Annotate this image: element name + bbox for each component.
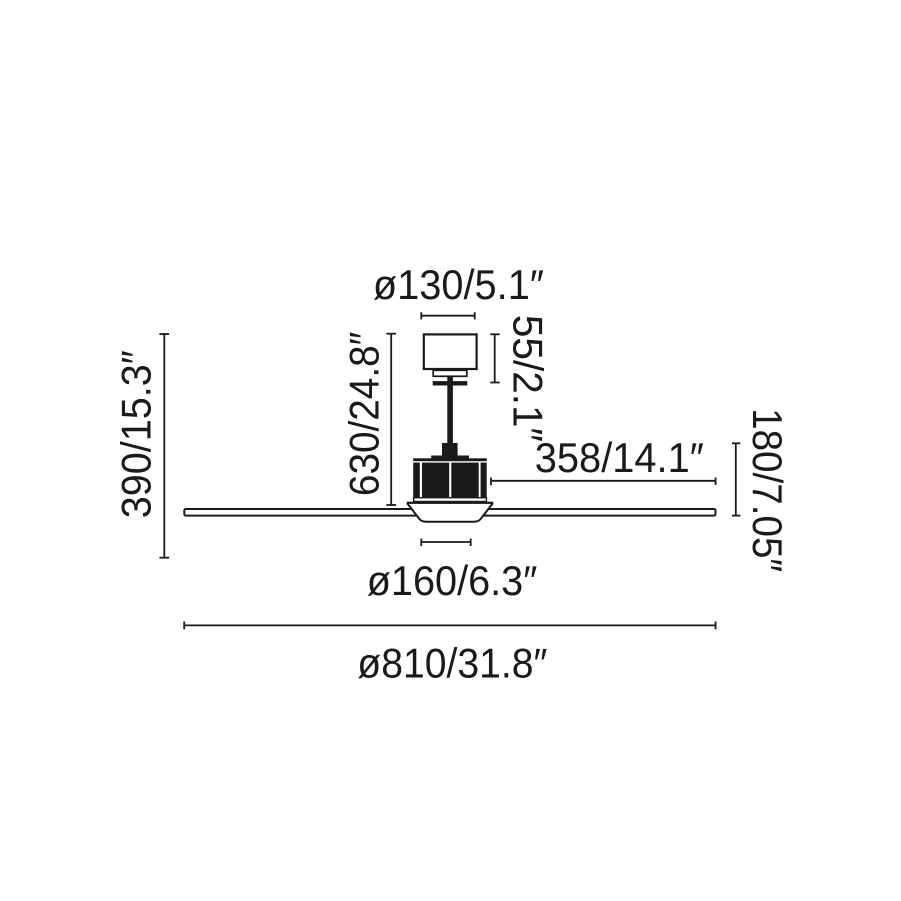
svg-text:ø160/6.3″: ø160/6.3″ — [367, 557, 538, 604]
svg-text:358/14.1″: 358/14.1″ — [535, 434, 704, 481]
svg-text:630/24.8″: 630/24.8″ — [341, 332, 388, 497]
svg-text:ø810/31.8″: ø810/31.8″ — [357, 640, 547, 687]
svg-text:180/7.05″: 180/7.05″ — [744, 408, 791, 572]
svg-text:390/15.3″: 390/15.3″ — [113, 350, 160, 518]
svg-text:ø130/5.1″: ø130/5.1″ — [373, 261, 544, 308]
svg-text:55/2.1″: 55/2.1″ — [505, 315, 552, 442]
